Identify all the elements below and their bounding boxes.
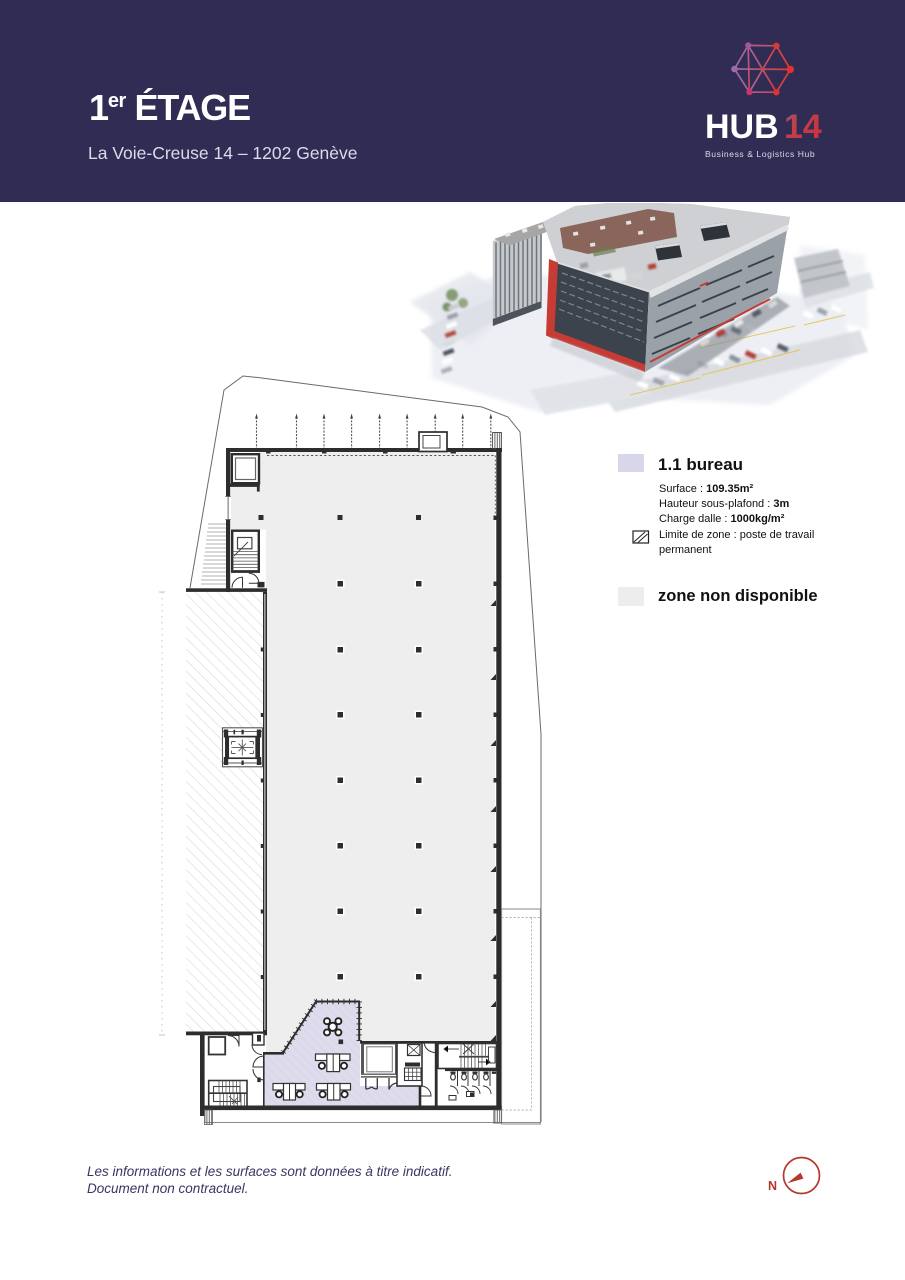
svg-text:14: 14 <box>784 108 822 146</box>
svg-text:HUB: HUB <box>705 108 779 146</box>
svg-text:Business & Logistics Hub: Business & Logistics Hub <box>705 149 815 159</box>
svg-text:N: N <box>768 1179 777 1193</box>
